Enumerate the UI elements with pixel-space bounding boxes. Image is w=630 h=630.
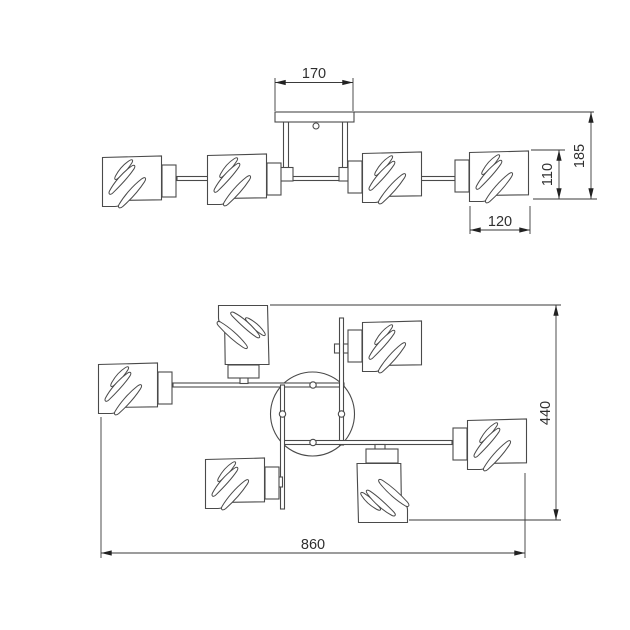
socket [348, 161, 362, 193]
lampshade-plan-top [217, 306, 269, 384]
lampshade-plan-bottom [206, 458, 283, 510]
socket [455, 160, 469, 192]
socket [267, 163, 281, 195]
ceiling-plate [275, 112, 354, 122]
clamp-nub [335, 344, 340, 353]
front-view: 170 185 110 120 [103, 66, 598, 234]
socket [265, 467, 279, 499]
socket [162, 165, 176, 197]
dim-label-shade-height: 110 [540, 163, 556, 186]
lampshade-plan-right [453, 419, 527, 471]
screw-bottom [310, 439, 316, 445]
canopy-mount [275, 112, 354, 181]
stem-left [284, 122, 289, 168]
dimension-shade-diameter: 120 [470, 206, 530, 234]
lampshade-front-2 [208, 154, 282, 206]
dim-label-overall-height: 185 [572, 144, 588, 168]
lampshade-plan-bottom-right [357, 445, 409, 523]
arm-right-vertical [340, 318, 344, 445]
stem-right [343, 122, 348, 168]
arm-bottom-horizontal [281, 441, 452, 445]
socket [366, 449, 398, 463]
socket [348, 330, 362, 362]
dim-label-canopy-width: 170 [302, 66, 326, 82]
socket [453, 428, 467, 460]
screw-right [338, 411, 344, 417]
plan-view: 440 860 [99, 305, 562, 558]
lampshade-front-4 [455, 151, 529, 203]
technical-drawing: 170 185 110 120 [0, 0, 630, 630]
dimension-canopy-width: 170 [275, 66, 353, 111]
dimension-shade-height: 110 [540, 150, 559, 199]
screw-top [310, 382, 316, 388]
lampshade-plan-left [99, 363, 173, 415]
arm-top-horizontal [173, 383, 344, 387]
dim-label-overall-depth: 440 [538, 401, 554, 425]
dim-label-shade-diameter: 120 [488, 214, 512, 230]
socket [228, 365, 259, 378]
arm-left-vertical [281, 385, 285, 509]
mount-screw [313, 123, 319, 129]
drawing-canvas: 170 185 110 120 [0, 0, 630, 630]
lampshade-front-3 [348, 152, 422, 204]
screw-left [279, 411, 285, 417]
socket [158, 372, 172, 404]
dim-label-overall-width: 860 [301, 537, 325, 553]
lampshade-plan-top-right [335, 321, 422, 373]
dimension-overall-height: 185 [572, 112, 591, 199]
lampshade-front-1 [103, 156, 177, 208]
